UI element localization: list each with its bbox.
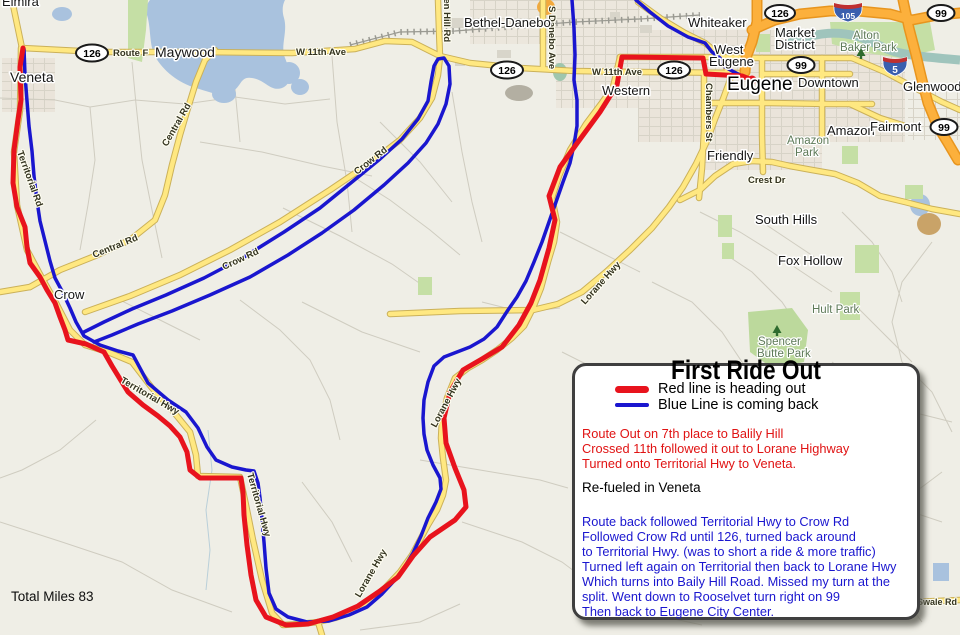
refuel-note: Re-fueled in Veneta [582, 480, 701, 495]
road-label-chambers-st: Chambers St [703, 83, 714, 142]
place-label-market-district-2: District [775, 37, 815, 52]
shield-126-veneta-label: 126 [83, 48, 101, 60]
shield-99-i5: 99 [931, 119, 958, 135]
route-out-line: Crossed 11th followed it out to Lorane H… [582, 441, 849, 456]
shield-126-eugene: 126 [658, 62, 690, 79]
park-label-spencer-butte-1: Spencer [758, 336, 801, 348]
legend-keys: Red line is heading out Blue Line is com… [615, 381, 818, 412]
ride-map-screenshot: Route F W 11th Ave W 11th Ave Green Hill… [0, 0, 960, 635]
place-label-friendly: Friendly [707, 148, 754, 163]
legend-key-blue-label: Blue Line is coming back [658, 397, 818, 413]
ride-summary: Total Miles 83 Most of it rolling hills … [11, 561, 186, 635]
shield-i5-label: 5 [892, 65, 898, 76]
route-back-line: Turned left again on Territorial then ba… [582, 559, 896, 574]
road-label-green-hill-rd: Green Hill Rd [441, 0, 452, 42]
park-label-amazon-park-2: Park [795, 147, 819, 159]
shield-99-topright: 99 [928, 5, 955, 21]
road-label-route-f: Route F [113, 48, 149, 59]
legend-key-blue: Blue Line is coming back [615, 397, 818, 413]
place-label-bethel-danebo: Bethel-Danebo [464, 15, 551, 30]
place-label-downtown: Downtown [798, 75, 859, 90]
place-label-glenwood: Glenwood [903, 79, 960, 94]
road-label-w11th-east: W 11th Ave [592, 67, 642, 78]
place-label-maywood: Maywood [155, 44, 215, 60]
route-out-line: Route Out on 7th place to Balily Hill [582, 426, 849, 441]
place-label-fox-hollow: Fox Hollow [778, 253, 843, 268]
shield-126-north-label: 126 [771, 8, 789, 20]
route-back-line: Followed Crow Rd until 126, turned back … [582, 529, 896, 544]
shield-126-north: 126 [765, 5, 795, 21]
place-label-amazon: Amazon [827, 123, 875, 138]
shield-99-downtown-label: 99 [795, 60, 807, 72]
shield-99-i5-label: 99 [938, 122, 950, 134]
route-back-line: Route back followed Territorial Hwy to C… [582, 514, 896, 529]
road-label-swale-rd: Swale Rd [917, 597, 957, 607]
road-label-crest-dr: Crest Dr [748, 175, 786, 186]
route-back-line: to Territorial Hwy. (was to short a ride… [582, 544, 896, 559]
place-label-fairmont: Fairmont [870, 119, 922, 134]
park-label-alton-baker-2: Baker Park [840, 42, 897, 54]
place-label-whiteaker: Whiteaker [688, 15, 747, 30]
route-back-description: Route back followed Territorial Hwy to C… [582, 514, 896, 619]
blue-line-swatch [615, 403, 649, 407]
summary-total-miles: Total Miles 83 [11, 590, 186, 605]
route-out-line: Turned onto Territorial Hwy to Veneta. [582, 456, 849, 471]
place-label-eugene: Eugene [727, 74, 793, 95]
place-label-west-eugene-2: Eugene [709, 54, 754, 69]
park-label-hult-park: Hult Park [812, 304, 860, 316]
shield-126-danebo-label: 126 [498, 65, 516, 77]
road-label-w11th-west: W 11th Ave [296, 47, 346, 58]
place-label-veneta: Veneta [10, 69, 54, 85]
legend-key-red: Red line is heading out [615, 381, 818, 397]
place-label-western: Western [602, 83, 650, 98]
legend-key-red-label: Red line is heading out [658, 381, 806, 397]
shield-99-topright-label: 99 [935, 8, 947, 20]
red-line-swatch [615, 386, 649, 393]
park-label-amazon-park-1: Amazon [787, 135, 829, 147]
place-label-south-hills: South Hills [755, 212, 818, 227]
place-label-crow: Crow [54, 287, 85, 302]
route-back-line: Then back to Eugene City Center. [582, 604, 896, 619]
legend-box: First Ride Out Red line is heading out B… [572, 363, 920, 620]
route-out-description: Route Out on 7th place to Balily Hill Cr… [582, 426, 849, 471]
shield-126-danebo: 126 [491, 62, 523, 79]
shield-126-veneta: 126 [76, 45, 108, 62]
place-label-elmira: Elmira [2, 0, 40, 9]
park-label-alton-baker-1: Alton [853, 30, 879, 42]
shield-99-downtown: 99 [788, 57, 815, 73]
route-back-line: Which turns into Baily Hill Road. Missed… [582, 574, 896, 589]
shield-126-eugene-label: 126 [665, 65, 683, 77]
route-back-line: split. Went down to Rooselvet turn right… [582, 589, 896, 604]
shield-i105-label: 105 [841, 11, 855, 21]
